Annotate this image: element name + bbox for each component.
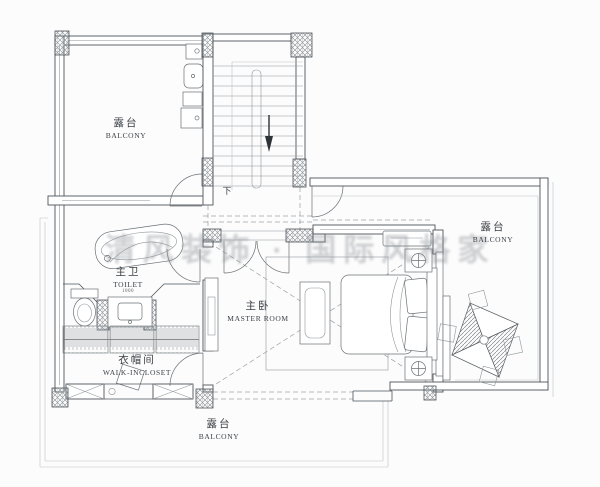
room-label-balcony-top-left: 露台 BALCONY <box>106 118 146 140</box>
room-label-en: BALCONY <box>106 131 146 140</box>
room-label-en: MASTER ROOM <box>227 314 288 323</box>
tv-console <box>205 278 218 351</box>
bed <box>341 268 437 360</box>
vanity-sink <box>108 297 152 327</box>
pillow <box>404 316 429 352</box>
clothes-racks <box>63 326 199 353</box>
room-label-balcony-bottom: 露台 BALCONY <box>199 419 239 441</box>
closet-door <box>170 353 203 386</box>
vanity-dimension-label: 1000 <box>122 289 134 294</box>
room-label-en: BALCONY <box>473 235 513 244</box>
watermark-text: 清风装饰 · 国际风格家 <box>105 225 496 270</box>
room-label-zh: 主卧 <box>227 301 288 314</box>
patio-umbrella-table <box>438 290 523 386</box>
room-label-toilet: 主卫 TOILET <box>113 267 143 289</box>
room-label-en: BALCONY <box>199 432 239 441</box>
laundry-fixtures <box>181 44 203 128</box>
room-label-en: WALK-INCLOSET <box>103 368 171 377</box>
room-label-closet: 衣帽间 WALK-INCLOSET <box>103 355 171 377</box>
room-label-balcony-right: 露台 BALCONY <box>473 222 513 244</box>
staircase <box>203 34 433 230</box>
room-label-zh: 主卫 <box>113 267 143 280</box>
pillow <box>404 278 429 314</box>
room-label-zh: 衣帽间 <box>103 355 171 368</box>
room-label-master: 主卧 MASTER ROOM <box>227 301 288 323</box>
room-label-zh: 露台 <box>199 419 239 432</box>
stairs-down-label: 下 <box>222 184 231 197</box>
stairs-down-arrow <box>265 115 273 152</box>
floor-plan-page: 清风装饰 · 国际风格家 露台 BALCONY 下 主卫 TOILET 1000… <box>0 0 600 487</box>
toilet-fixture <box>71 289 98 326</box>
room-label-en: TOILET <box>113 280 143 289</box>
bench <box>300 282 330 344</box>
room-label-zh: 露台 <box>106 118 146 131</box>
headboard <box>427 268 437 360</box>
nightstand-lamp-bottom <box>405 357 432 380</box>
room-label-zh: 露台 <box>473 222 513 235</box>
landing-door <box>312 186 343 217</box>
sliding-door <box>436 252 450 380</box>
